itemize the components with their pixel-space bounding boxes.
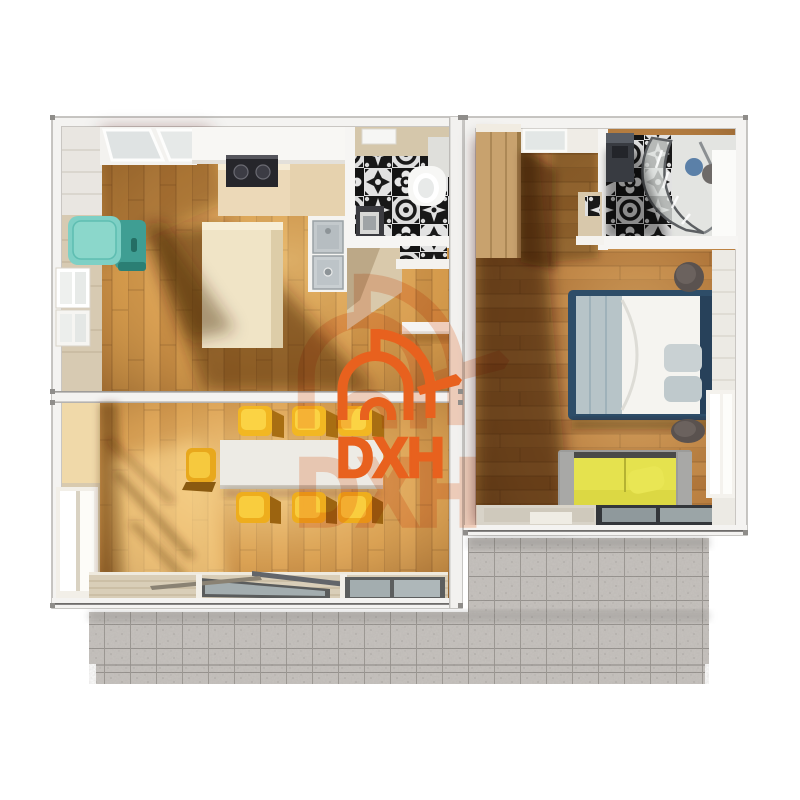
- svg-text:DXH: DXH: [336, 426, 444, 490]
